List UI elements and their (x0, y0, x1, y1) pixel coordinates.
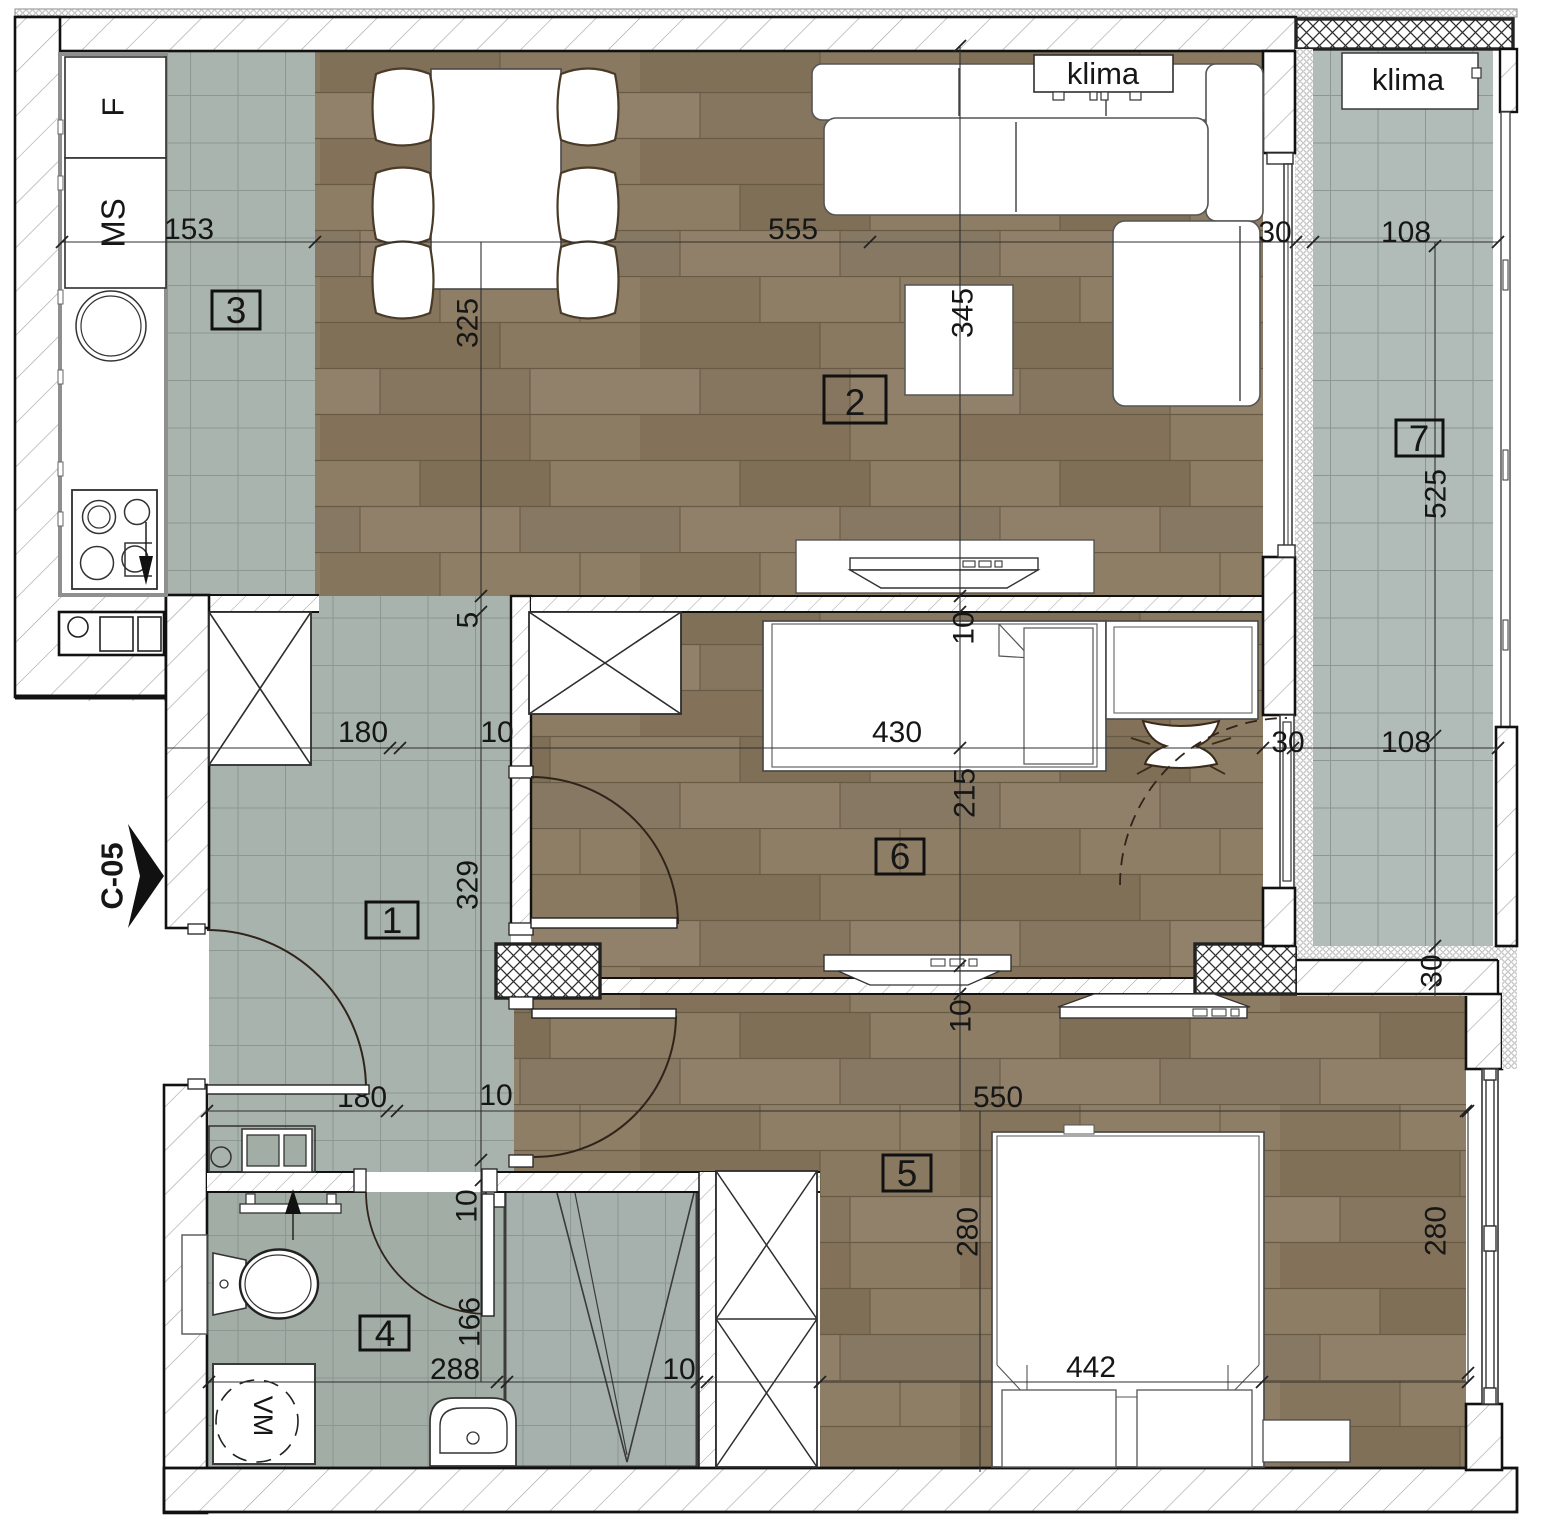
svg-text:5: 5 (897, 1153, 918, 1194)
svg-text:7: 7 (1409, 418, 1430, 459)
svg-text:30: 30 (1416, 954, 1449, 987)
svg-text:F: F (96, 98, 131, 117)
svg-text:MS: MS (95, 198, 132, 248)
svg-text:10: 10 (480, 716, 513, 749)
svg-text:280: 280 (1420, 1206, 1453, 1256)
svg-text:4: 4 (375, 1313, 396, 1354)
svg-text:C-05: C-05 (95, 842, 130, 909)
svg-text:108: 108 (1381, 216, 1431, 249)
svg-text:280: 280 (952, 1207, 985, 1257)
svg-text:10: 10 (662, 1353, 695, 1386)
svg-text:30: 30 (1271, 726, 1304, 759)
svg-text:klima: klima (1372, 62, 1445, 97)
svg-text:1: 1 (382, 900, 403, 941)
svg-text:10: 10 (479, 1079, 512, 1112)
svg-text:325: 325 (452, 298, 485, 348)
svg-text:555: 555 (768, 213, 818, 246)
svg-text:2: 2 (845, 382, 866, 423)
svg-text:10: 10 (451, 1189, 484, 1222)
svg-text:30: 30 (1258, 216, 1291, 249)
svg-text:VM: VM (248, 1396, 278, 1437)
svg-text:10: 10 (948, 611, 981, 644)
svg-text:430: 430 (872, 716, 922, 749)
svg-text:329: 329 (452, 860, 485, 910)
svg-text:215: 215 (949, 768, 982, 818)
svg-text:3: 3 (226, 290, 247, 331)
svg-text:525: 525 (1420, 469, 1453, 519)
svg-text:153: 153 (164, 213, 214, 246)
svg-text:klima: klima (1067, 56, 1140, 91)
svg-text:180: 180 (338, 716, 388, 749)
svg-text:288: 288 (430, 1353, 480, 1386)
svg-text:5: 5 (452, 612, 485, 629)
svg-text:108: 108 (1381, 726, 1431, 759)
svg-text:442: 442 (1066, 1351, 1116, 1384)
svg-text:550: 550 (973, 1081, 1023, 1114)
svg-text:345: 345 (947, 288, 980, 338)
svg-text:10: 10 (945, 999, 978, 1032)
svg-text:6: 6 (890, 836, 911, 877)
